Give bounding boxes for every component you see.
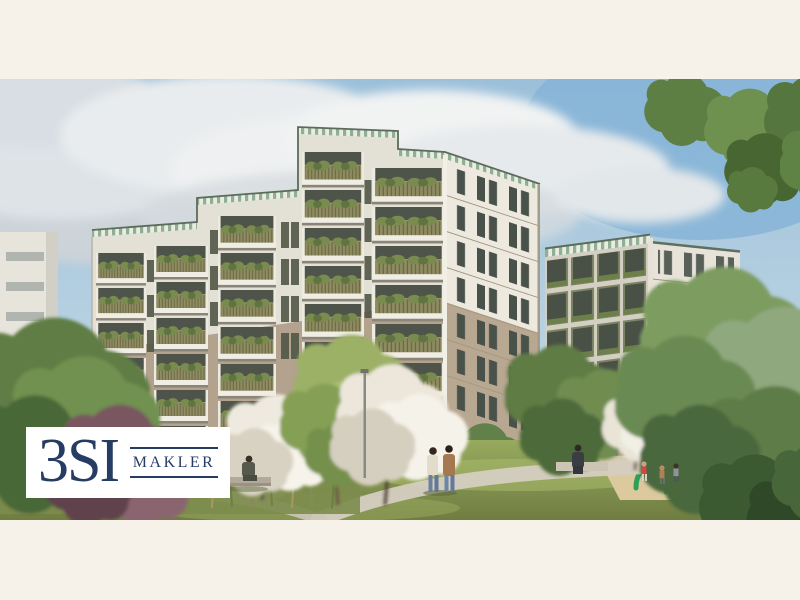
listing-photo: 3SI MAKLER [0,0,800,600]
brand-subtitle-block: MAKLER [130,447,218,478]
brand-text: 3SI [38,430,118,492]
brand-subtitle: MAKLER [133,449,216,476]
logo-box: 3SI MAKLER [26,427,230,498]
logo-rule-bottom [130,476,218,478]
rendering-scene [0,0,800,600]
